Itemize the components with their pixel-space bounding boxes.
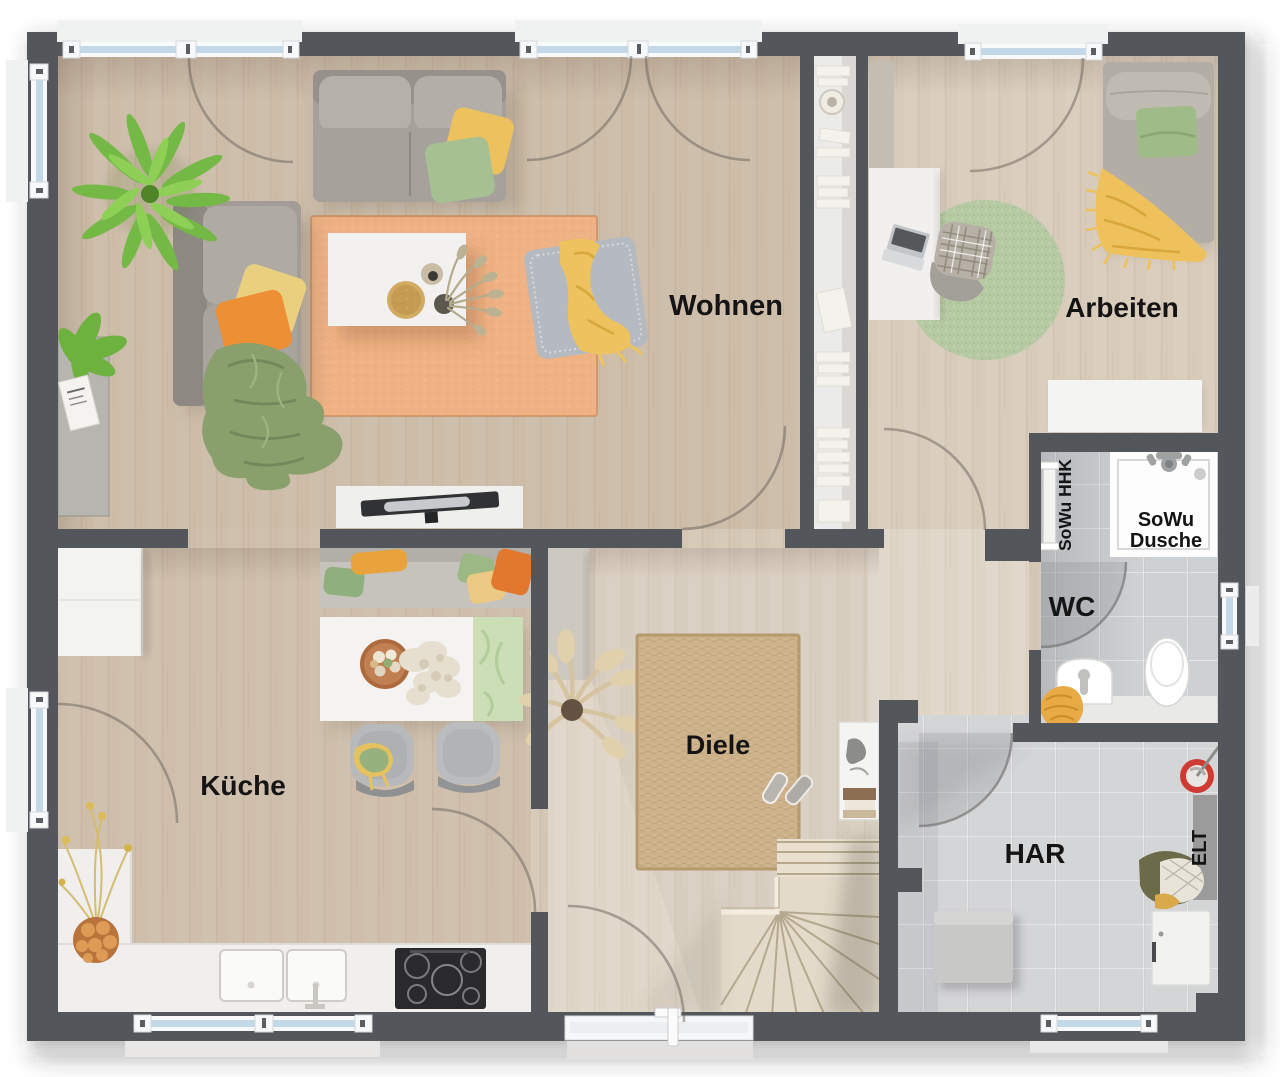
svg-text:Dusche: Dusche: [1130, 530, 1202, 552]
svg-text:Diele: Diele: [686, 730, 751, 760]
svg-text:Arbeiten: Arbeiten: [1065, 292, 1179, 323]
svg-text:SoWu HHK: SoWu HHK: [1055, 459, 1075, 551]
svg-text:SoWu: SoWu: [1138, 509, 1194, 531]
svg-text:ELT: ELT: [1189, 830, 1211, 866]
svg-text:Wohnen: Wohnen: [669, 290, 783, 322]
svg-text:WC: WC: [1049, 591, 1096, 622]
svg-text:HAR: HAR: [1005, 838, 1066, 869]
svg-text:Küche: Küche: [200, 770, 286, 801]
